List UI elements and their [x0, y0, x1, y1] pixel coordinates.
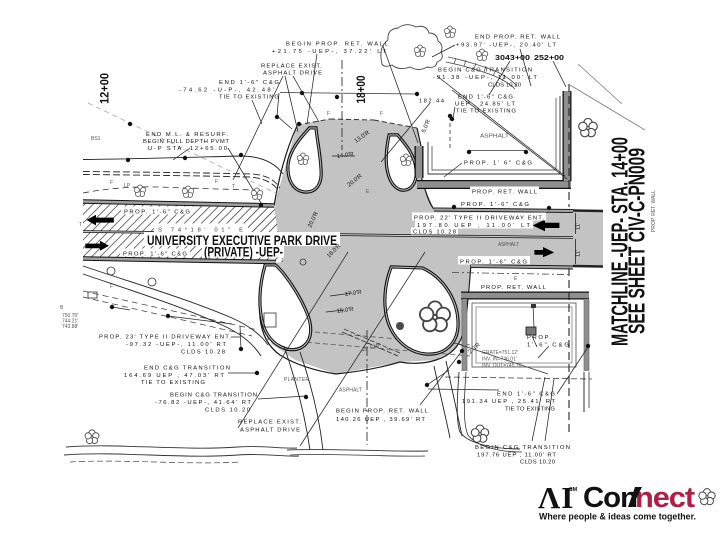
- svg-text:ASPHALT: ASPHALT: [339, 388, 362, 394]
- svg-text:BEGIN PROP. RET. WALL: BEGIN PROP. RET. WALL: [286, 42, 389, 48]
- svg-text:PROP. RET. WALL: PROP. RET. WALL: [472, 190, 538, 196]
- svg-text:197.80 UEP , 11.00' LT: 197.80 UEP , 11.00' LT: [417, 223, 530, 229]
- svg-text:Con: Con: [583, 482, 637, 514]
- svg-text:F: F: [380, 111, 383, 117]
- svg-text:INV. IN=746.01': INV. IN=746.01': [482, 357, 517, 363]
- svg-text:F: F: [215, 179, 218, 185]
- svg-text:BEGIN FULL DEPTH PVMT: BEGIN FULL DEPTH PVMT: [143, 139, 229, 145]
- svg-text:REPLACE EXIST.: REPLACE EXIST.: [261, 64, 322, 70]
- svg-text:BS1: BS1: [91, 136, 101, 142]
- svg-text:ASPHALT DRIVE: ASPHALT DRIVE: [263, 71, 322, 77]
- svg-text:END M.L. & RESURF.: END M.L. & RESURF.: [146, 132, 228, 138]
- svg-text:END 1'-6" C&G: END 1'-6" C&G: [497, 392, 555, 398]
- svg-text:ASPHALT: ASPHALT: [480, 134, 509, 140]
- svg-text:ASPHALT: ASPHALT: [498, 242, 519, 248]
- svg-text:18+00: 18+00: [356, 76, 368, 104]
- svg-text:CLDS 10.20: CLDS 10.20: [205, 408, 251, 414]
- svg-text:11': 11': [576, 223, 582, 230]
- svg-text:UEP , 24.85' LT: UEP , 24.85' LT: [455, 102, 515, 108]
- svg-text:12+00: 12+00: [100, 73, 112, 104]
- svg-text:11': 11': [576, 250, 582, 257]
- svg-text:PLANTER: PLANTER: [284, 377, 309, 383]
- svg-text:TIE TO EXISTING: TIE TO EXISTING: [219, 95, 279, 101]
- svg-text:197.76 UEP , 11.00' RT: 197.76 UEP , 11.00' RT: [477, 453, 556, 459]
- svg-text:END 1'-6" C&G: END 1'-6" C&G: [458, 95, 513, 101]
- svg-text:U-P STA. 12+65.00: U-P STA. 12+65.00: [148, 146, 228, 152]
- svg-text:+93.97' -UEP-, 20.40' LT: +93.97' -UEP-, 20.40' LT: [456, 43, 556, 49]
- svg-text:3043+00: 3043+00: [495, 53, 530, 62]
- svg-text:END C&G TRANSITION: END C&G TRANSITION: [144, 366, 230, 372]
- svg-text:ΛI: ΛI: [538, 480, 574, 515]
- svg-text:END PROP. RET. WALL: END PROP. RET. WALL: [475, 35, 561, 41]
- svg-text:nect: nect: [635, 482, 696, 514]
- svg-text:PROP. 23' TYPE II DRIVEWAY: PROP. 23' TYPE II DRIVEWAY ENT.: [99, 335, 231, 341]
- svg-text:CLDS 10.20: CLDS 10.20: [520, 460, 556, 466]
- svg-text:TIE TO EXISTING: TIE TO EXISTING: [456, 109, 516, 115]
- svg-text:CLDS 10.28: CLDS 10.28: [413, 230, 457, 236]
- svg-text:252+00: 252+00: [534, 53, 564, 62]
- svg-text:F: F: [110, 284, 113, 290]
- svg-text:SEE SHEET CIV-C-PN009: SEE SHEET CIV-C-PN009: [624, 148, 650, 334]
- svg-text:BEGIN C&G TRANSITION: BEGIN C&G TRANSITION: [170, 393, 257, 399]
- svg-text:LP: LP: [124, 183, 131, 189]
- svg-text:PROP.: PROP.: [527, 335, 551, 341]
- svg-text:T: T: [79, 222, 82, 228]
- svg-text:PROP. RET. WALL: PROP. RET. WALL: [651, 190, 657, 232]
- svg-text:INV. OUT=745.76': INV. OUT=745.76': [482, 363, 522, 369]
- svg-text:Where people & ideas come toge: Where people & ideas come together.: [539, 512, 696, 522]
- svg-text:SM: SM: [569, 487, 578, 493]
- svg-text:ASPHALT DRIVE: ASPHALT DRIVE: [240, 428, 300, 434]
- svg-text:F: F: [327, 111, 330, 117]
- svg-text:F: F: [110, 180, 113, 186]
- svg-text:(PRIVATE) -UEP-: (PRIVATE) -UEP-: [204, 244, 283, 260]
- svg-text:BEGIN PROP. RET. WALL: BEGIN PROP. RET. WALL: [336, 409, 429, 415]
- svg-text:END 1'-6" C&G: END 1'-6" C&G: [219, 80, 279, 86]
- svg-text:GRATE=751.12': GRATE=751.12': [482, 350, 518, 356]
- svg-text:T: T: [232, 184, 235, 190]
- svg-text:743.88': 743.88': [62, 324, 78, 330]
- svg-text:CLDS 10.28: CLDS 10.28: [181, 350, 226, 356]
- svg-text:PROP. RET. WALL: PROP. RET. WALL: [481, 285, 547, 291]
- svg-text:-76.82 -UEP-, 41.64' RT: -76.82 -UEP-, 41.64' RT: [155, 400, 251, 406]
- svg-text:TIE TO EXISTING: TIE TO EXISTING: [505, 407, 555, 413]
- svg-text:CLDS 10.20: CLDS 10.20: [488, 83, 522, 89]
- svg-text:TIE TO EXISTING: TIE TO EXISTING: [141, 380, 205, 386]
